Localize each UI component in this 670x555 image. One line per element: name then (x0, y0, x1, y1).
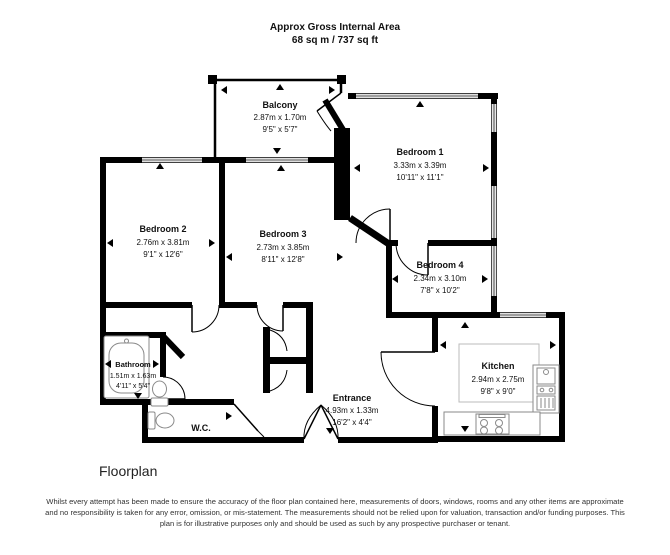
svg-text:2.87m x 1.70m: 2.87m x 1.70m (254, 113, 307, 122)
svg-text:2.73m x 3.85m: 2.73m x 3.85m (257, 243, 310, 252)
room-label-bedroom1: Bedroom 1 3.33m x 3.39m 10'11" x 11'1" (394, 147, 447, 182)
room-label-bedroom3: Bedroom 3 2.73m x 3.85m 8'11" x 12'8" (257, 229, 310, 264)
svg-text:Kitchen: Kitchen (481, 361, 514, 371)
svg-text:2.76m x 3.81m: 2.76m x 3.81m (137, 238, 190, 247)
svg-text:Entrance: Entrance (333, 393, 372, 403)
svg-text:1.51m x 1.63m: 1.51m x 1.63m (110, 373, 156, 380)
kitchen-sink-unit (533, 365, 559, 413)
room-label-bedroom4: Bedroom 4 2.34m x 3.10m 7'8" x 10'2" (414, 260, 467, 295)
svg-text:Bedroom 1: Bedroom 1 (396, 147, 443, 157)
svg-text:2.94m x 2.75m: 2.94m x 2.75m (472, 375, 525, 384)
svg-text:7'8" x 10'2": 7'8" x 10'2" (420, 286, 460, 295)
doors (163, 93, 435, 439)
svg-text:Balcony: Balcony (262, 100, 297, 110)
svg-text:16'2" x 4'4": 16'2" x 4'4" (332, 418, 372, 427)
svg-text:4.93m x 1.33m: 4.93m x 1.33m (326, 406, 379, 415)
svg-text:4'11" x 5'4": 4'11" x 5'4" (116, 383, 150, 390)
svg-text:3.33m x 3.39m: 3.33m x 3.39m (394, 161, 447, 170)
floorplan-page: Approx Gross Internal Area 68 sq m / 737… (0, 0, 670, 555)
svg-text:9'1" x 12'6": 9'1" x 12'6" (143, 250, 183, 259)
room-label-balcony: Balcony 2.87m x 1.70m 9'5" x 5'7" (254, 100, 307, 134)
kitchen-counter-hob (444, 412, 540, 435)
disclaimer-text: Whilst every attempt has been made to en… (45, 497, 625, 529)
svg-text:9'5" x 5'7": 9'5" x 5'7" (263, 125, 298, 134)
room-label-wc: W.C. (191, 423, 211, 433)
svg-text:W.C.: W.C. (191, 423, 211, 433)
svg-text:Bedroom 3: Bedroom 3 (259, 229, 306, 239)
floorplan-caption: Floorplan (99, 463, 157, 479)
svg-text:Bedroom 4: Bedroom 4 (416, 260, 463, 270)
svg-text:Bedroom 2: Bedroom 2 (139, 224, 186, 234)
svg-text:9'8" x 9'0": 9'8" x 9'0" (481, 387, 516, 396)
bathroom-toilet (151, 381, 168, 406)
svg-text:Bathroom: Bathroom (115, 360, 151, 369)
wc-toilet (148, 412, 174, 429)
svg-text:10'11" x 11'1": 10'11" x 11'1" (396, 173, 443, 182)
room-label-entrance: Entrance 4.93m x 1.33m 16'2" x 4'4" (326, 393, 379, 427)
room-label-bathroom: Bathroom 1.51m x 1.63m 4'11" x 5'4" (110, 360, 156, 390)
svg-text:8'11" x 12'8": 8'11" x 12'8" (261, 255, 304, 264)
svg-text:2.34m x 3.10m: 2.34m x 3.10m (414, 274, 467, 283)
room-label-bedroom2: Bedroom 2 2.76m x 3.81m 9'1" x 12'6" (137, 224, 190, 259)
